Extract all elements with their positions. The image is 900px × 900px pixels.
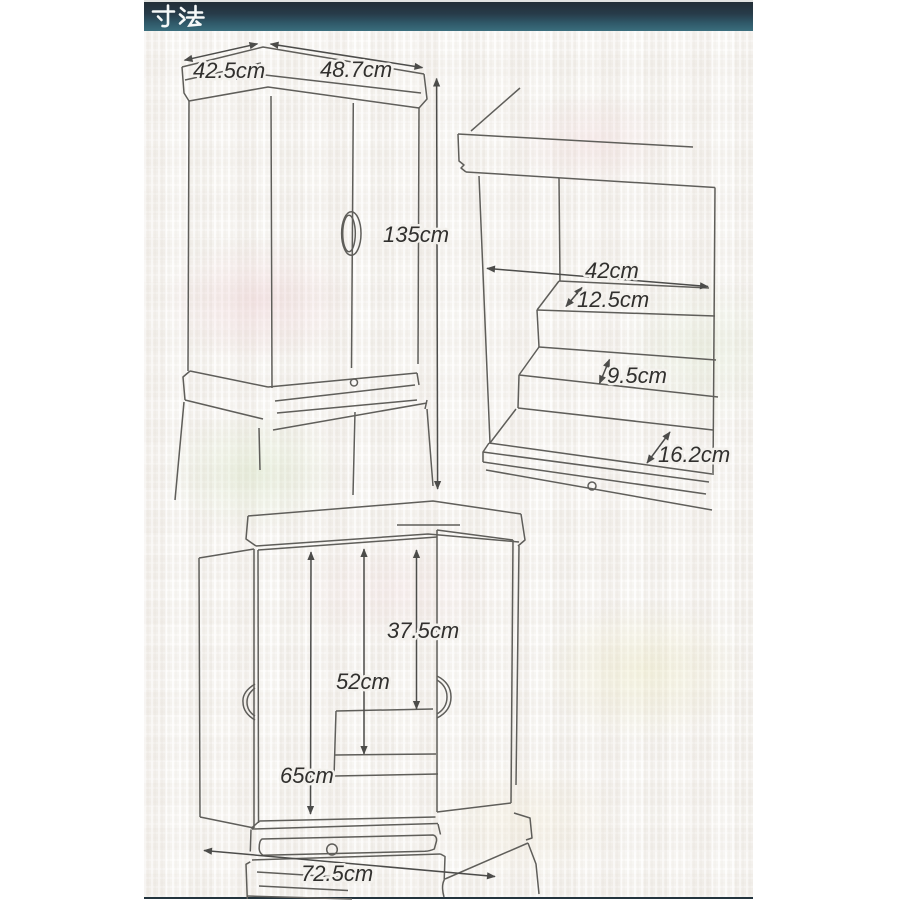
svg-text:42cm: 42cm — [585, 258, 639, 283]
svg-text:48.7cm: 48.7cm — [320, 57, 392, 82]
svg-text:65cm: 65cm — [280, 763, 334, 788]
svg-text:16.2cm: 16.2cm — [658, 442, 730, 467]
svg-text:135cm: 135cm — [383, 222, 449, 247]
svg-text:9.5cm: 9.5cm — [607, 363, 667, 388]
svg-text:72.5cm: 72.5cm — [301, 861, 373, 886]
svg-text:12.5cm: 12.5cm — [577, 287, 649, 312]
svg-text:37.5cm: 37.5cm — [387, 618, 459, 643]
svg-text:42.5cm: 42.5cm — [193, 58, 265, 83]
svg-text:52cm: 52cm — [336, 669, 390, 694]
